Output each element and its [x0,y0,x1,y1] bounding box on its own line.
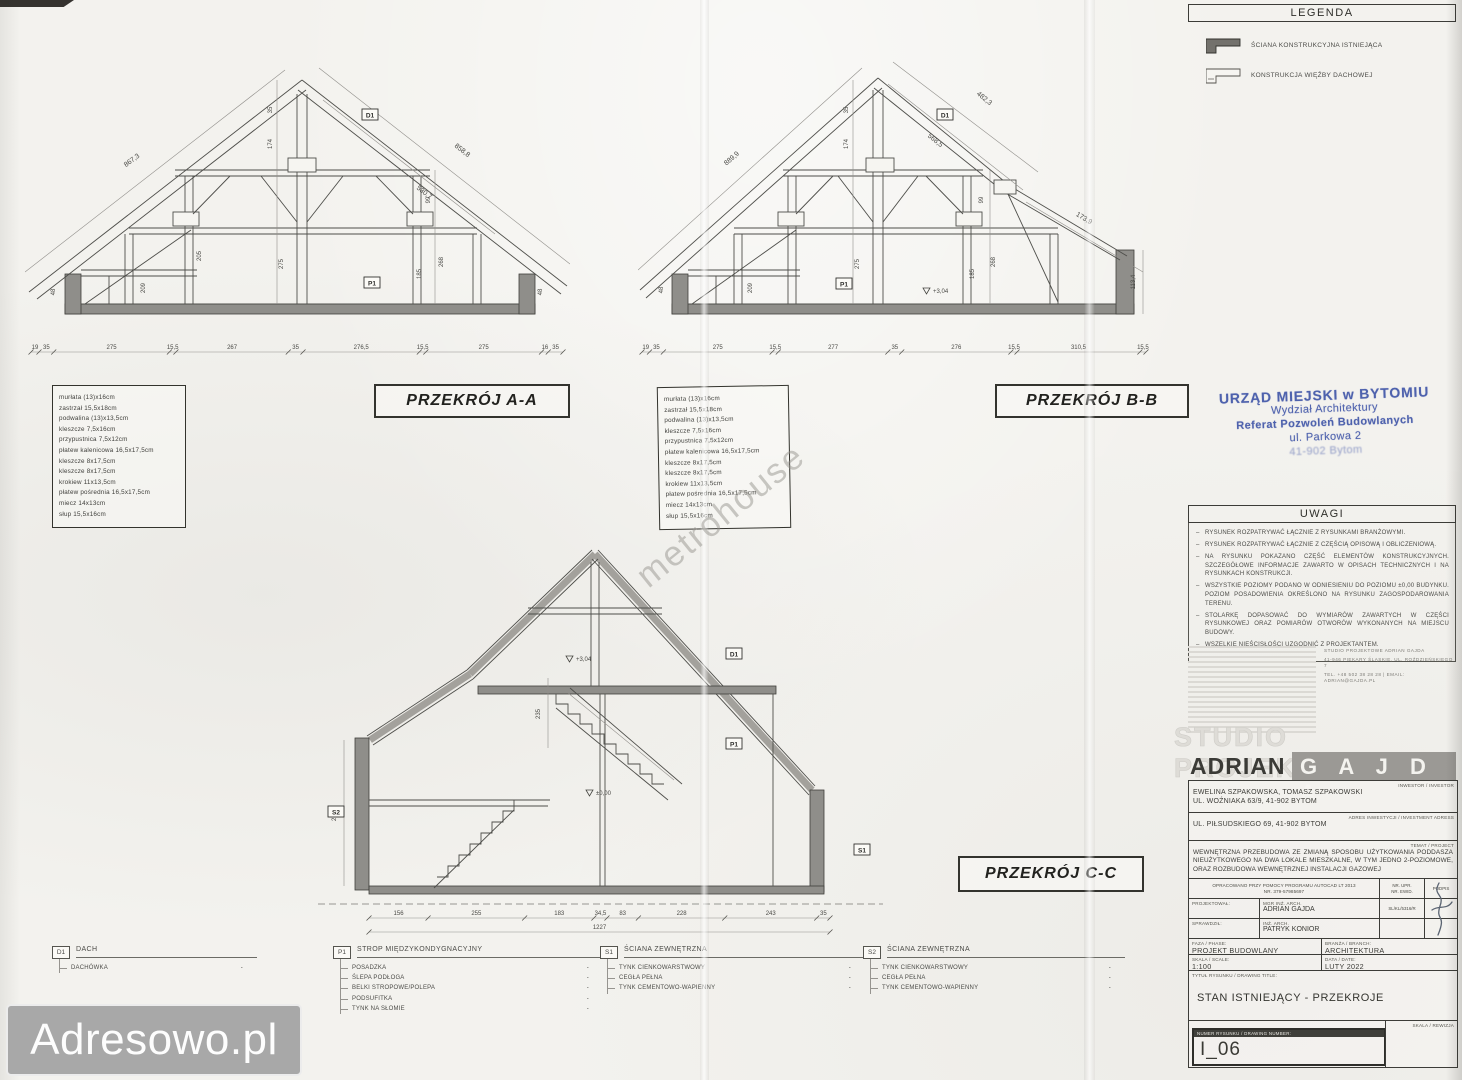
dimension-label: 243 [766,911,777,917]
aa-dim-lines [25,68,570,304]
section-label-bb-text: PRZEKRÓJ B-B [1026,392,1158,410]
layer-item: TYNK CIENKOWARSTWOWY- [608,963,865,973]
studio-address-line: TEL. +48 502 38 28 28 | EMAIL: ADRIAN@GA… [1324,672,1456,685]
layer-item: POSADZKA- [341,963,603,973]
material-line: krokiew 11x13,5cm [59,478,179,489]
dimension-label: 35 [653,345,660,351]
dimension-label: 35 [43,345,50,351]
upr-label-cell: NR. UPR. NR. EWID. [1379,879,1424,898]
checker-row: SPRAWDZIŁ: INŻ. ARCH. PATRYK KONIOR [1189,919,1457,939]
uwagi-panel: UWAGI RYSUNEK ROZPATRYWAĆ ŁĄCZNIE Z RYSU… [1188,505,1456,662]
section-cc-building: 270235+3,04±0,00S2S1D1P115625518334,5832… [318,538,883,938]
note-line: STOLARKĘ DOPASOWAĆ DO WYMIARÓW ZAWARTYCH… [1195,612,1449,638]
legend-group-items: TYNK CIENKOWARSTWOWY-CEGŁA PEŁNA-TYNK CE… [870,959,1125,994]
layer-item: DACHÓWKA- [60,963,257,973]
material-line: przypustnica 7,5x12cm [59,435,179,446]
drawing-number: I_06 [1194,1037,1384,1061]
material-line: słup 15,5x16cm [59,510,179,521]
section-label-cc: PRZEKRÓJ C-C [958,856,1144,892]
element-marker: D1 [941,113,950,120]
legend-group-p1-floor: P1 STROP MIĘDZYKONDYGNACYJNY POSADZKA-ŚL… [333,946,603,1014]
dimension-label: 858,8 [453,143,471,159]
note-line: RYSUNEK ROZPATRYWAĆ ŁĄCZNIE Z RYSUNKAMI … [1195,529,1449,538]
element-marker: S2 [332,810,340,817]
note-line: WSZYSTKIE POZIOMY PODANO W ODNIESIENIU D… [1195,582,1449,608]
software-row: OPRACOWANO PRZY POMOCY PROGRAMU AUTOCAD … [1189,879,1457,899]
designer-label-cell: PROJEKTOWAŁ: [1189,899,1259,918]
aa-structure [29,80,567,314]
dimension-label: 275 [713,345,724,351]
dimension-label: 113,4 [1131,274,1137,289]
layer-thickness-placeholder: - [587,983,589,993]
dimension-label: 255 [471,911,482,917]
dimension-label: 209 [748,282,754,293]
upr-label1: NR. UPR. [1380,879,1424,888]
dimension-label: 19 [642,345,649,351]
level-marker-label: ±0,00 [596,791,612,797]
dimension-label: 275 [479,345,490,351]
studio-address-line: 41-946 PIEKARY ŚLĄSKIE, UL. ROŹDZIEŃSKIE… [1324,657,1456,670]
marker-code-s2: S2 [863,946,881,959]
studio-address-line: STUDIO PROJEKTOWE ADRIAN GAJDA [1324,648,1456,655]
dimension-label: 48 [538,288,544,295]
dimension-label: 173,9 [1074,211,1093,226]
roof-truss-swatch-icon [1206,66,1242,84]
dimension-label: 99 [426,196,432,203]
dimension-label: 15,5 [417,345,429,351]
element-marker: P1 [730,742,738,749]
dimension-label: 275 [855,258,861,269]
layer-item: TYNK CEMENTOWO-WAPIENNY- [871,983,1125,993]
investor-address: UL. WOŹNIAKA 63/9, 41-902 BYTOM [1189,797,1457,807]
element-marker: P1 [840,282,848,289]
legend-group-s2-wall: S2 ŚCIANA ZEWNĘTRZNA TYNK CIENKOWARSTWOW… [863,946,1125,994]
layer-thickness-placeholder: - [849,983,851,993]
layer-thickness-placeholder: - [587,1004,589,1014]
dimension-label: 15,5 [1008,345,1020,351]
dimension-label: 15,5 [167,345,179,351]
dimension-label: 889,9 [723,150,741,167]
dimension-label: 277 [828,345,839,351]
layer-thickness-placeholder: - [1109,973,1111,983]
layer-name: TYNK NA SŁOMIE [352,1004,405,1014]
section-cc-drawing: 270235+3,04±0,00S2S1D1P115625518334,5832… [318,538,883,938]
dimension-label: 183 [554,911,565,917]
layer-item: ŚLEPA PODŁOGA- [341,973,603,983]
section-label-aa-text: PRZEKRÓJ A-A [406,392,537,410]
section-label-cc-text: PRZEKRÓJ C-C [985,865,1117,883]
marker-code-s1: S1 [600,946,618,959]
branch-value: ARCHITEKTURA [1322,946,1457,955]
legend-items: ŚCIANA KONSTRUKCYJNA ISTNIEJĄCA KONSTRUK… [1188,22,1456,84]
legend-item-wall: ŚCIANA KONSTRUKCYJNA ISTNIEJĄCA [1206,36,1456,54]
dimension-label: 34,5 [595,911,607,917]
dimension-label: 156 [394,911,405,917]
section-label-aa: PRZEKRÓJ A-A [374,384,570,418]
drawing-number-row: NUMER RYSUNKU / DRAWING NUMBER: I_06 SKA… [1189,1021,1457,1067]
designer-upr-cell: SL/KL/5316/R [1379,899,1424,918]
material-line: murłata (13)x16cm [59,393,179,404]
legend-group-items: DACHÓWKA- [59,959,257,973]
phase-cell: FAZA / PHASE: PROJEKT BUDOWLANY [1189,939,1321,954]
layer-name: DACHÓWKA [71,963,108,973]
legend-group-s1-wall: S1 ŚCIANA ZEWNĘTRZNA TYNK CIENKOWARSTWOW… [600,946,865,994]
investment-address-cell: ADRES INWESTYCJI / INVESTMENT ADRESS UL.… [1189,813,1457,841]
scan-edge-shadow [1446,0,1462,1080]
material-line: kleszcze 7,5x16cm [59,425,179,436]
subject-cell: TEMAT / PROJECT WEWNĘTRZNA PRZEBUDOWA ZE… [1189,841,1457,879]
dimension-label: 19 [32,345,39,351]
layer-thickness-placeholder: - [587,973,589,983]
layer-name: BELKI STROPOWE/POLEPA [352,983,435,993]
layer-item: BELKI STROPOWE/POLEPA- [341,983,603,993]
drawing-number-label: NUMER RYSUNKU / DRAWING NUMBER: [1194,1030,1384,1037]
drawing-title-cell: TYTUŁ RYSUNKU / DRAWING TITLE: STAN ISTN… [1189,971,1457,1021]
dimension-label: 35 [891,345,898,351]
layer-thickness-placeholder: - [241,963,243,973]
marker-code-p1: P1 [333,946,351,959]
layer-item: TYNK CIENKOWARSTWOWY- [871,963,1125,973]
layer-name: TYNK CIENKOWARSTWOWY [882,963,968,973]
dimension-label: 276 [951,345,962,351]
dimension-label: 268 [991,256,997,267]
investor-cell: INWESTOR / INVESTOR EWELINA SZPAKOWSKA, … [1189,781,1457,813]
dimension-label: 35 [268,106,274,113]
upr-label2: NR. EWID. [1380,888,1424,894]
layer-name: CEGŁA PEŁNA [882,973,926,983]
section-bb-truss: 889,9482,3568,5173,935174275992681852091… [638,22,1158,374]
dimension-label: 235 [536,708,542,719]
dimension-label: 15,5 [769,345,781,351]
office-stamp: URZĄD MIEJSKI w BYTOMIUWydział Architekt… [1195,384,1455,463]
material-line: płatew kalenicowa 16,5x17,5cm [59,446,179,457]
layer-name: TYNK CEMENTOWO-WAPIENNY [619,983,715,993]
legend-group-title: DACH [76,946,257,958]
dimension-label: 35 [820,911,827,917]
legend-group-title: ŚCIANA ZEWNĘTRZNA [624,946,865,958]
phase-row: FAZA / PHASE: PROJEKT BUDOWLANY BRANŻA /… [1189,939,1457,955]
bb-structure [640,78,1134,314]
dimension-label: 867,3 [123,153,141,169]
note-line: RYSUNEK ROZPATRYWAĆ ŁĄCZNIE Z CZĘŚCIĄ OP… [1195,541,1449,550]
layer-name: PODSUFITKA [352,994,392,1004]
scale-value: 1:100 [1189,962,1321,971]
layer-thickness-placeholder: - [1109,983,1111,993]
dimension-label: 1227 [593,925,607,931]
scale-row: SKALA / SCALE: 1:100 DATA / DATE: LUTY 2… [1189,955,1457,971]
layer-item: PODSUFITKA- [341,994,603,1004]
upper-stair-steps [556,694,664,784]
dimension-label: 48 [51,288,57,295]
software-note: OPRACOWANO PRZY POMOCY PROGRAMU AUTOCAD … [1189,879,1379,898]
dimension-label: 83 [619,911,626,917]
dimension-label: 268 [439,256,445,267]
dimension-label: 568,5 [926,133,944,150]
checker-upr-cell [1379,919,1424,938]
section-aa-drawing: 867,3858,8530,73517427599268185209205484… [25,22,570,374]
material-line: podwalina (13)x13,5cm [59,414,179,425]
date-value: LUTY 2022 [1322,962,1457,971]
layer-thickness-placeholder: - [1109,963,1111,973]
existing-wall-swatch-icon [1206,36,1242,54]
studio-name-adrian: ADRIAN [1190,753,1285,780]
date-cell: DATA / DATE: LUTY 2022 [1321,955,1457,970]
branch-cell: BRANŻA / BRANCH: ARCHITEKTURA [1321,939,1457,954]
dimension-label: 48 [659,286,665,293]
designer-name: ADRIAN GAJDA [1260,906,1379,913]
material-line: miecz 14x13cm [59,499,179,510]
investor-name: EWELINA SZPAKOWSKA, TOMASZ SZPAKOWSKI [1189,788,1457,798]
scan-edge-shadow [0,0,20,1080]
dimension-label: 15,5 [1137,345,1149,351]
dimension-label: 16 [542,345,549,351]
materials-list-aa: murłata (13)x16cmzastrzał 15,5x18cmpodwa… [52,385,186,528]
element-marker: P1 [368,281,376,288]
dimension-label: 275 [107,345,118,351]
adresowo-watermark: Adresowo.pl [6,1004,302,1076]
designer-name-cell: MGR INŻ. ARCH. ADRIAN GAJDA [1259,899,1379,918]
dimension-label: 185 [970,268,976,279]
legend-group-d1-roof: D1 DACH DACHÓWKA- [52,946,257,973]
material-line: zastrzał 15,5x18cm [59,404,179,415]
legend-item-label: KONSTRUKCJA WIĘŹBY DACHOWEJ [1251,72,1373,79]
investment-address: UL. PIŁSUDSKIEGO 69, 41-902 BYTOM [1189,820,1457,830]
designer-label: PROJEKTOWAŁ: [1189,899,1259,906]
lower-stair-steps [437,800,514,877]
dimension-label: 267 [227,345,238,351]
designer-upr-number: SL/KL/5316/R [1380,906,1424,911]
layer-item: CEGŁA PEŁNA- [871,973,1125,983]
legend-item-label: ŚCIANA KONSTRUKCYJNA ISTNIEJĄCA [1251,42,1382,49]
material-line: kleszcze 8x17,5cm [59,457,179,468]
studio-name: ADRIAN G A J D A [1188,752,1456,780]
software-line2: NR. 379-57985697 [1189,889,1379,895]
dimension-label: 99 [979,196,985,203]
dimension-label: 35 [552,345,559,351]
dimension-label: 35 [844,106,850,113]
phase-value: PROJEKT BUDOWLANY [1189,946,1321,955]
dimension-label: 205 [197,250,203,261]
level-marker-label: +3,04 [933,289,949,295]
layer-item: TYNK CEMENTOWO-WAPIENNY- [608,983,865,993]
material-line: kleszcze 8x17,5cm [59,467,179,478]
checker-label-cell: SPRAWDZIŁ: [1189,919,1259,938]
barcode-stripes-decoration [1188,646,1316,734]
level-marker-label: +3,04 [576,657,592,663]
designer-row: PROJEKTOWAŁ: MGR INŻ. ARCH. ADRIAN GAJDA… [1189,899,1457,919]
layer-name: POSADZKA [352,963,386,973]
dimension-label: 275 [279,258,285,269]
dimension-label: 174 [844,138,850,149]
cc-structure [318,550,883,904]
legend-group-items: TYNK CIENKOWARSTWOWY-CEGŁA PEŁNA-TYNK CE… [607,959,865,994]
note-line: NA RYSUNKU POKAZANO CZĘŚĆ ELEMENTÓW KONS… [1195,553,1449,579]
layer-thickness-placeholder: - [587,963,589,973]
legend-group-title: STROP MIĘDZYKONDYGNACYJNY [357,946,603,958]
legend-group-items: POSADZKA-ŚLEPA PODŁOGA-BELKI STROPOWE/PO… [340,959,603,1014]
checker-label: SPRAWDZIŁ: [1189,919,1259,926]
dimension-label: 228 [677,911,688,917]
legend-title: LEGENDA [1188,4,1456,22]
layer-name: CEGŁA PEŁNA [619,973,663,983]
studio-logo-block: STUDIO PROJEKTOWE ADRIAN GAJDA41-946 PIE… [1188,642,1456,780]
dimension-label: 310,5 [1071,345,1087,351]
legend-item-truss: KONSTRUKCJA WIĘŹBY DACHOWEJ [1206,66,1456,84]
drawing-title: STAN ISTNIEJĄCY - PRZEKROJE [1189,978,1457,1004]
adresowo-watermark-text: Adresowo.pl [30,1015,278,1065]
title-block: INWESTOR / INVESTOR EWELINA SZPAKOWSKA, … [1188,780,1458,1068]
material-line: płatew pośrednia 16,5x17,5cm [59,488,179,499]
layer-thickness-placeholder: - [849,973,851,983]
layer-thickness-placeholder: - [849,963,851,973]
dimension-label: 209 [141,282,147,293]
blueprint-page: 867,3858,8530,73517427599268185209205484… [0,0,1462,1080]
dimension-label: 185 [417,268,423,279]
layer-name: ŚLEPA PODŁOGA [352,973,405,983]
drawing-number-box: NUMER RYSUNKU / DRAWING NUMBER: I_06 [1192,1028,1386,1066]
element-marker: D1 [366,113,375,120]
legend-panel: LEGENDA ŚCIANA KONSTRUKCYJNA ISTNIEJĄCA … [1188,4,1456,96]
layer-item: CEGŁA PEŁNA- [608,973,865,983]
section-label-bb: PRZEKRÓJ B-B [995,384,1189,418]
studio-address-lines: STUDIO PROJEKTOWE ADRIAN GAJDA41-946 PIE… [1324,648,1456,687]
subject-text: WEWNĘTRZNA PRZEBUDOWA ZE ZMIANĄ SPOSOBU … [1189,848,1457,875]
layer-name: TYNK CIENKOWARSTWOWY [619,963,705,973]
marker-code-d1: D1 [52,946,70,959]
layer-thickness-placeholder: - [587,994,589,1004]
legend-group-title: ŚCIANA ZEWNĘTRZNA [887,946,1125,958]
layer-name: TYNK CEMENTOWO-WAPIENNY [882,983,978,993]
section-aa-truss: 867,3858,8530,73517427599268185209205484… [25,22,570,374]
uwagi-title: UWAGI [1188,505,1456,523]
checker-name-cell: INŻ. ARCH. PATRYK KONIOR [1259,919,1379,938]
dimension-label: 174 [268,138,274,149]
element-marker: D1 [730,652,739,659]
section-bb-drawing: 889,9482,3568,5173,935174275992681852091… [638,22,1158,374]
dimension-label: 35 [292,345,299,351]
dimension-label: 482,3 [975,91,993,108]
layer-item: TYNK NA SŁOMIE- [341,1004,603,1014]
dimension-label: 276,5 [354,345,370,351]
cc-dim-lines [344,678,548,886]
element-marker: S1 [858,848,866,855]
checker-name: PATRYK KONIOR [1260,926,1379,933]
scale-cell: SKALA / SCALE: 1:100 [1189,955,1321,970]
